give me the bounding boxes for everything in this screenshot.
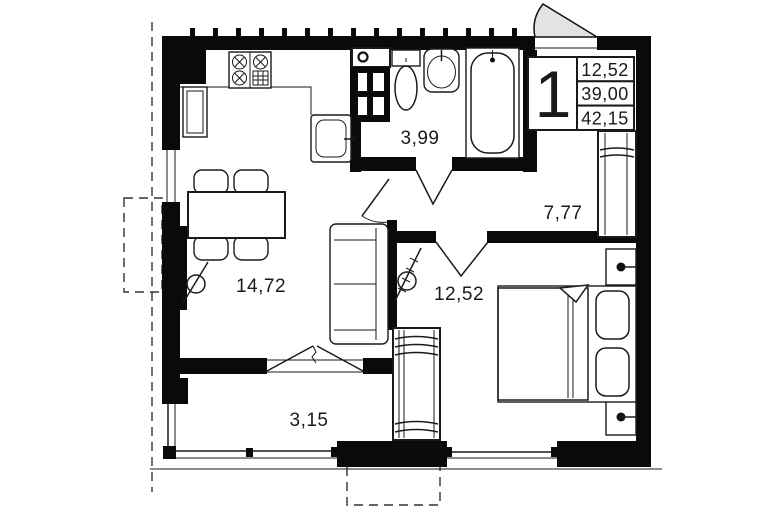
stove (229, 52, 271, 88)
wardrobe-outline (598, 131, 636, 237)
bathtub (466, 48, 519, 158)
vent-shaft (352, 67, 390, 122)
bed-frame (498, 286, 636, 402)
dining-table (188, 192, 285, 238)
bathroom-bottom-wall-left (350, 157, 416, 171)
tub-rim (466, 48, 519, 158)
right-wall (636, 36, 651, 462)
area-value-apartment: 39,00 (581, 84, 629, 104)
shaft-slot (358, 97, 367, 115)
hallway-area-label: 7,77 (544, 203, 583, 224)
shaft-body (352, 67, 390, 122)
left-corner-pier (162, 36, 206, 84)
wardrobe-hallway (598, 131, 636, 237)
toilet (392, 50, 420, 110)
area-value-living: 12,52 (581, 60, 629, 80)
bedroom-window-opening (447, 443, 557, 464)
balcony-door-leaf (317, 346, 363, 371)
bathroom-bottom-wall-right (452, 157, 523, 171)
shaft-slot (373, 73, 384, 91)
chair (234, 170, 268, 194)
floor-plan-page: 1 12,52 39,00 42,15 3,99 7,77 12,52 14,7… (0, 0, 770, 510)
living-area-label: 14,72 (236, 276, 286, 297)
living-door-leaf (362, 179, 389, 216)
bathroom-door-leaf (416, 170, 452, 204)
living-door-swing-arc (362, 216, 388, 222)
tub-drain (490, 58, 495, 63)
window-end-post (551, 447, 559, 457)
nightstand-top (606, 249, 636, 285)
wardrobe-bedroom (393, 328, 440, 440)
sofa (330, 224, 388, 344)
radiator-pipe (395, 248, 421, 301)
unit-info-box: 1 12,52 39,00 42,15 (528, 57, 634, 131)
bottom-wall-center (337, 441, 447, 467)
entrance-door-leaf (534, 4, 597, 37)
washbasin (424, 49, 459, 92)
chair (194, 170, 228, 194)
kitchen-fixtures (180, 52, 356, 162)
bedroom-door-leaf (436, 242, 488, 276)
double-bed (498, 285, 636, 402)
bottom-projection-dashed-box (347, 467, 440, 505)
balcony-door-leaf (267, 346, 313, 371)
bottom-wall-right (557, 441, 651, 467)
left-wall-lower (162, 202, 180, 380)
left-window-opening (163, 150, 179, 202)
balcony-area-label: 3,15 (290, 410, 329, 431)
toilet-bowl (395, 66, 417, 110)
chair (234, 236, 268, 260)
shaft-slot (373, 97, 384, 115)
bedroom-furniture (393, 248, 636, 440)
shaft-slot (358, 73, 367, 91)
railing-post (246, 448, 253, 457)
bedroom-top-wall-left (388, 231, 436, 243)
balcony-left-pier (162, 378, 188, 404)
radiator-bedroom (395, 248, 421, 301)
bedroom-area-label: 12,52 (434, 284, 484, 305)
kitchen-sink (311, 115, 356, 162)
living-bottom-wall-right (363, 358, 393, 374)
window-end-post (444, 447, 452, 457)
bathroom-area-label: 3,99 (401, 128, 440, 149)
radiator-valve-icon (187, 275, 205, 293)
railing-post (331, 447, 339, 457)
nightstand-bottom (606, 399, 636, 435)
chair (194, 236, 228, 260)
railing-post (163, 446, 176, 459)
living-bottom-wall-left (180, 358, 267, 374)
hallway-furniture (598, 131, 636, 237)
area-value-total: 42,15 (581, 109, 629, 129)
left-projection-dashed-box (124, 198, 162, 292)
floor-plan-drawing: 1 12,52 39,00 42,15 3,99 7,77 12,52 14,7… (0, 0, 770, 510)
unit-type-number: 1 (535, 57, 572, 131)
living-room-furniture (180, 170, 388, 344)
